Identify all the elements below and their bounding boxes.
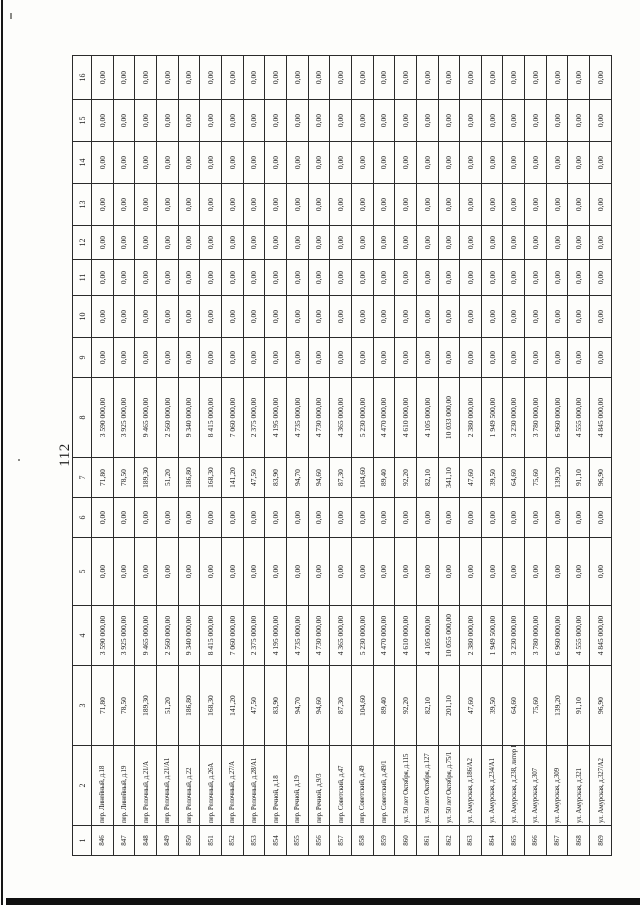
value-cell: 1 949 500,00 [481,378,503,458]
value-cell: 0,00 [330,296,352,338]
column-header: 14 [73,142,92,184]
value-cell: 0,00 [438,100,460,142]
value-cell: 0,00 [200,226,222,260]
value-cell: 0,00 [546,498,568,538]
address-cell: пер. Линейный, д.19 [113,746,135,826]
table-row: 867ул. Амурская, д.309139,206 960 000,00… [546,56,568,856]
value-cell: 0,00 [308,296,330,338]
value-cell: 0,00 [243,56,265,100]
value-cell: 0,00 [92,260,114,296]
value-cell: 0,00 [330,498,352,538]
value-cell: 6 960 000,00 [546,378,568,458]
column-header: 16 [73,56,92,100]
value-cell: 0,00 [156,226,178,260]
value-cell: 0,00 [590,260,612,296]
value-cell: 0,00 [590,538,612,606]
value-cell: 0,00 [178,498,200,538]
table-row: 859пер. Советский, д.49/189,404 470 000,… [373,56,395,856]
value-cell: 0,00 [438,184,460,226]
value-cell: 0,00 [351,498,373,538]
value-cell: 4 470 000,00 [373,378,395,458]
address-cell: пер. Советский, д.47 [330,746,352,826]
value-cell: 0,00 [113,260,135,296]
value-cell: 47,50 [243,666,265,746]
value-cell: 0,00 [265,538,287,606]
address-cell: пер. Релочный, д.22 [178,746,200,826]
value-cell: 0,00 [156,538,178,606]
value-cell: 4 555 000,00 [568,378,590,458]
value-cell: 0,00 [178,260,200,296]
value-cell: 92,20 [395,458,417,498]
value-cell: 0,00 [546,142,568,184]
value-cell: 83,90 [265,458,287,498]
value-cell: 2 375 000,00 [243,606,265,666]
value-cell: 4 470 000,00 [373,606,395,666]
value-cell: 0,00 [460,296,482,338]
value-cell: 0,00 [373,184,395,226]
value-cell: 47,60 [460,458,482,498]
value-cell: 0,00 [135,142,157,184]
value-cell: 0,00 [135,100,157,142]
value-cell: 3 780 000,00 [525,606,547,666]
value-cell: 9 340 000,00 [178,378,200,458]
value-cell: 0,00 [351,226,373,260]
value-cell: 0,00 [135,538,157,606]
value-cell: 0,00 [243,338,265,378]
value-cell: 0,00 [92,226,114,260]
value-cell: 0,00 [568,260,590,296]
address-cell: ул. Амурская, д.321 [568,746,590,826]
value-cell: 0,00 [265,296,287,338]
value-cell: 0,00 [200,498,222,538]
value-cell: 0,00 [416,538,438,606]
value-cell: 83,90 [265,666,287,746]
value-cell: 0,00 [200,260,222,296]
value-cell: 0,00 [113,538,135,606]
value-cell: 0,00 [546,296,568,338]
value-cell: 0,00 [135,56,157,100]
value-cell: 0,00 [481,184,503,226]
row-number-cell: 856 [308,826,330,856]
value-cell: 0,00 [92,338,114,378]
table-row: 846пер. Линейный, д.1871,803 590 000,000… [92,56,114,856]
value-cell: 4 845 000,00 [590,378,612,458]
value-cell: 139,20 [546,458,568,498]
value-cell: 0,00 [460,260,482,296]
value-cell: 0,00 [373,538,395,606]
address-cell: ул. 50 лет Октября, д.127 [416,746,438,826]
value-cell: 0,00 [590,296,612,338]
row-number-cell: 863 [460,826,482,856]
value-cell: 0,00 [286,142,308,184]
value-cell: 0,00 [568,100,590,142]
value-cell: 0,00 [373,100,395,142]
value-cell: 92,20 [395,666,417,746]
value-cell: 0,00 [286,538,308,606]
value-cell: 0,00 [308,498,330,538]
value-cell: 0,00 [265,184,287,226]
value-cell: 0,00 [113,296,135,338]
value-cell: 0,00 [525,338,547,378]
column-header: 12 [73,226,92,260]
value-cell: 0,00 [156,184,178,226]
property-table: 12345678910111213141516 846пер. Линейный… [72,55,612,856]
value-cell: 7 060 000,00 [221,378,243,458]
address-cell: ул. Амурская, д.307 [525,746,547,826]
value-cell: 78,50 [113,458,135,498]
column-header: 2 [73,746,92,826]
column-header: 7 [73,458,92,498]
value-cell: 0,00 [546,338,568,378]
value-cell: 0,00 [460,338,482,378]
row-number-cell: 847 [113,826,135,856]
value-cell: 4 735 000,00 [286,606,308,666]
value-cell: 94,60 [308,458,330,498]
value-cell: 51,20 [156,666,178,746]
value-cell: 0,00 [156,56,178,100]
row-number-cell: 859 [373,826,395,856]
value-cell: 0,00 [395,498,417,538]
value-cell: 139,20 [546,666,568,746]
row-number-cell: 849 [156,826,178,856]
row-number-cell: 861 [416,826,438,856]
value-cell: 0,00 [243,100,265,142]
value-cell: 0,00 [351,538,373,606]
value-cell: 0,00 [135,226,157,260]
value-cell: 75,60 [525,666,547,746]
table-row: 869ул. Амурская, д.327/А296,904 845 000,… [590,56,612,856]
value-cell: 0,00 [113,498,135,538]
value-cell: 0,00 [373,498,395,538]
value-cell: 0,00 [503,56,525,100]
value-cell: 0,00 [373,296,395,338]
value-cell: 78,50 [113,666,135,746]
value-cell: 0,00 [568,338,590,378]
value-cell: 0,00 [590,184,612,226]
row-number-cell: 864 [481,826,503,856]
value-cell: 0,00 [330,184,352,226]
value-cell: 0,00 [221,498,243,538]
value-cell: 0,00 [92,100,114,142]
value-cell: 0,00 [438,226,460,260]
scanned-page: 112 12345678910111213141516 846пер. Лине… [0,0,640,905]
value-cell: 0,00 [308,226,330,260]
table-row: 852пер. Релочный, д.27/А141,207 060 000,… [221,56,243,856]
value-cell: 0,00 [200,184,222,226]
value-cell: 0,00 [351,260,373,296]
value-cell: 0,00 [395,100,417,142]
value-cell: 4 555 000,00 [568,606,590,666]
value-cell: 75,60 [525,458,547,498]
value-cell: 87,30 [330,666,352,746]
value-cell: 0,00 [156,260,178,296]
value-cell: 4 845 000,00 [590,606,612,666]
value-cell: 201,10 [438,666,460,746]
value-cell: 89,40 [373,458,395,498]
value-cell: 64,60 [503,666,525,746]
value-cell: 10 033 000,00 [438,378,460,458]
column-header: 1 [73,826,92,856]
address-cell: пер. Советский, д.49/1 [373,746,395,826]
value-cell: 0,00 [481,260,503,296]
value-cell: 82,10 [416,666,438,746]
row-number-cell: 858 [351,826,373,856]
table-row: 864ул. Амурская, д.234/А139,501 949 500,… [481,56,503,856]
value-cell: 0,00 [438,296,460,338]
value-cell: 0,00 [243,184,265,226]
value-cell: 0,00 [243,498,265,538]
value-cell: 0,00 [438,142,460,184]
value-cell: 0,00 [221,538,243,606]
value-cell: 0,00 [416,296,438,338]
value-cell: 4 735 000,00 [286,378,308,458]
value-cell: 341,10 [438,458,460,498]
row-number-cell: 852 [221,826,243,856]
value-cell: 47,60 [460,666,482,746]
column-header: 8 [73,378,92,458]
value-cell: 0,00 [503,184,525,226]
value-cell: 0,00 [416,184,438,226]
value-cell: 0,00 [308,260,330,296]
value-cell: 0,00 [92,184,114,226]
value-cell: 82,10 [416,458,438,498]
row-number-cell: 865 [503,826,525,856]
value-cell: 0,00 [373,338,395,378]
value-cell: 0,00 [330,338,352,378]
header-row: 12345678910111213141516 [73,56,92,856]
value-cell: 0,00 [178,296,200,338]
row-number-cell: 851 [200,826,222,856]
value-cell: 0,00 [113,56,135,100]
value-cell: 0,00 [308,184,330,226]
value-cell: 0,00 [438,338,460,378]
value-cell: 0,00 [373,56,395,100]
value-cell: 0,00 [135,260,157,296]
value-cell: 0,00 [416,142,438,184]
table-row: 853пер. Релочный, д.28/А147,502 375 000,… [243,56,265,856]
value-cell: 0,00 [460,142,482,184]
value-cell: 6 960 000,00 [546,606,568,666]
value-cell: 0,00 [221,226,243,260]
value-cell: 0,00 [525,142,547,184]
table-row: 849пер. Релочный, д.21/А151,202 560 000,… [156,56,178,856]
value-cell: 0,00 [373,142,395,184]
value-cell: 96,90 [590,458,612,498]
address-cell: ул. 50 лет Октября, д.115 [395,746,417,826]
value-cell: 0,00 [243,296,265,338]
table-row: 860ул. 50 лет Октября, д.11592,204 610 0… [395,56,417,856]
value-cell: 0,00 [286,56,308,100]
value-cell: 189,30 [135,666,157,746]
value-cell: 0,00 [92,142,114,184]
table-row: 858пер. Советский, д.49104,605 230 000,0… [351,56,373,856]
value-cell: 0,00 [503,538,525,606]
value-cell: 0,00 [330,56,352,100]
value-cell: 0,00 [525,538,547,606]
value-cell: 0,00 [438,56,460,100]
value-cell: 0,00 [92,498,114,538]
value-cell: 0,00 [503,296,525,338]
value-cell: 0,00 [460,184,482,226]
value-cell: 4 730 000,00 [308,378,330,458]
column-header: 6 [73,498,92,538]
value-cell: 0,00 [590,56,612,100]
value-cell: 0,00 [265,56,287,100]
value-cell: 168,30 [200,458,222,498]
value-cell: 0,00 [113,100,135,142]
value-cell: 0,00 [286,338,308,378]
address-cell: ул. Амурская, д.234/А1 [481,746,503,826]
value-cell: 0,00 [221,100,243,142]
address-cell: пер. Речной, д.18 [265,746,287,826]
value-cell: 0,00 [200,56,222,100]
value-cell: 96,90 [590,666,612,746]
value-cell: 0,00 [568,296,590,338]
value-cell: 0,00 [351,338,373,378]
value-cell: 0,00 [308,100,330,142]
value-cell: 0,00 [221,296,243,338]
value-cell: 0,00 [590,498,612,538]
value-cell: 189,30 [135,458,157,498]
value-cell: 0,00 [525,184,547,226]
value-cell: 3 230 000,00 [503,378,525,458]
value-cell: 3 590 000,00 [92,606,114,666]
value-cell: 0,00 [178,338,200,378]
value-cell: 0,00 [438,498,460,538]
value-cell: 0,00 [308,338,330,378]
value-cell: 91,10 [568,458,590,498]
table-row: 856пер. Речной, д.9/394,604 730 000,000,… [308,56,330,856]
value-cell: 0,00 [416,338,438,378]
value-cell: 2 560 000,00 [156,606,178,666]
value-cell: 0,00 [568,226,590,260]
value-cell: 8 415 000,00 [200,606,222,666]
value-cell: 0,00 [481,142,503,184]
value-cell: 71,80 [92,666,114,746]
value-cell: 2 380 000,00 [460,378,482,458]
value-cell: 0,00 [286,226,308,260]
value-cell: 0,00 [416,498,438,538]
row-number-cell: 857 [330,826,352,856]
table-row: 854пер. Речной, д.1883,904 195 000,000,0… [265,56,287,856]
value-cell: 0,00 [568,184,590,226]
value-cell: 5 230 000,00 [351,606,373,666]
scan-edge-bottom [6,898,640,905]
value-cell: 0,00 [460,538,482,606]
row-number-cell: 862 [438,826,460,856]
value-cell: 0,00 [438,538,460,606]
value-cell: 0,00 [481,296,503,338]
table-row: 857пер. Советский, д.4787,304 365 000,00… [330,56,352,856]
table-row: 847пер. Линейный, д.1978,503 925 000,000… [113,56,135,856]
value-cell: 2 380 000,00 [460,606,482,666]
value-cell: 0,00 [481,100,503,142]
value-cell: 4 365 000,00 [330,378,352,458]
value-cell: 0,00 [330,260,352,296]
value-cell: 0,00 [546,538,568,606]
value-cell: 0,00 [243,226,265,260]
value-cell: 71,80 [92,458,114,498]
value-cell: 0,00 [308,142,330,184]
address-cell: пер. Речной, д.19 [286,746,308,826]
value-cell: 0,00 [156,296,178,338]
value-cell: 0,00 [481,538,503,606]
value-cell: 0,00 [113,184,135,226]
value-cell: 0,00 [308,538,330,606]
value-cell: 0,00 [416,56,438,100]
value-cell: 104,60 [351,458,373,498]
value-cell: 7 060 000,00 [221,606,243,666]
value-cell: 0,00 [265,100,287,142]
value-cell: 0,00 [351,296,373,338]
value-cell: 0,00 [546,226,568,260]
column-header: 4 [73,606,92,666]
address-cell: пер. Релочный, д.21/А1 [156,746,178,826]
value-cell: 0,00 [243,260,265,296]
address-cell: ул. Амурская, д.186/А2 [460,746,482,826]
value-cell: 0,00 [178,226,200,260]
value-cell: 0,00 [200,538,222,606]
value-cell: 0,00 [92,56,114,100]
value-cell: 0,00 [503,142,525,184]
address-cell: пер. Линейный, д.18 [92,746,114,826]
value-cell: 0,00 [286,260,308,296]
value-cell: 3 230 000,00 [503,606,525,666]
value-cell: 0,00 [178,56,200,100]
value-cell: 0,00 [221,142,243,184]
scan-speck [10,13,12,19]
value-cell: 0,00 [286,184,308,226]
value-cell: 39,50 [481,458,503,498]
value-cell: 0,00 [460,56,482,100]
column-header: 9 [73,338,92,378]
value-cell: 9 340 000,00 [178,606,200,666]
value-cell: 3 925 000,00 [113,378,135,458]
value-cell: 0,00 [416,226,438,260]
value-cell: 186,80 [178,666,200,746]
value-cell: 0,00 [395,338,417,378]
value-cell: 0,00 [395,142,417,184]
value-cell: 0,00 [503,100,525,142]
value-cell: 89,40 [373,666,395,746]
value-cell: 64,60 [503,458,525,498]
value-cell: 8 415 000,00 [200,378,222,458]
row-number-cell: 853 [243,826,265,856]
value-cell: 0,00 [221,56,243,100]
value-cell: 0,00 [135,296,157,338]
row-number-cell: 869 [590,826,612,856]
value-cell: 0,00 [286,498,308,538]
value-cell: 9 465 000,00 [135,378,157,458]
value-cell: 0,00 [416,100,438,142]
value-cell: 3 590 000,00 [92,378,114,458]
rotated-table-container: 12345678910111213141516 846пер. Линейный… [72,56,612,856]
value-cell: 94,70 [286,458,308,498]
value-cell: 0,00 [178,142,200,184]
scan-speck [18,459,20,461]
row-number-cell: 850 [178,826,200,856]
value-cell: 51,20 [156,458,178,498]
table-row: 861ул. 50 лет Октября, д.12782,104 105 0… [416,56,438,856]
value-cell: 0,00 [265,260,287,296]
value-cell: 0,00 [351,142,373,184]
value-cell: 0,00 [503,338,525,378]
value-cell: 0,00 [178,538,200,606]
table-row: 866ул. Амурская, д.30775,603 780 000,000… [525,56,547,856]
value-cell: 0,00 [503,226,525,260]
value-cell: 4 195 000,00 [265,378,287,458]
value-cell: 0,00 [265,226,287,260]
